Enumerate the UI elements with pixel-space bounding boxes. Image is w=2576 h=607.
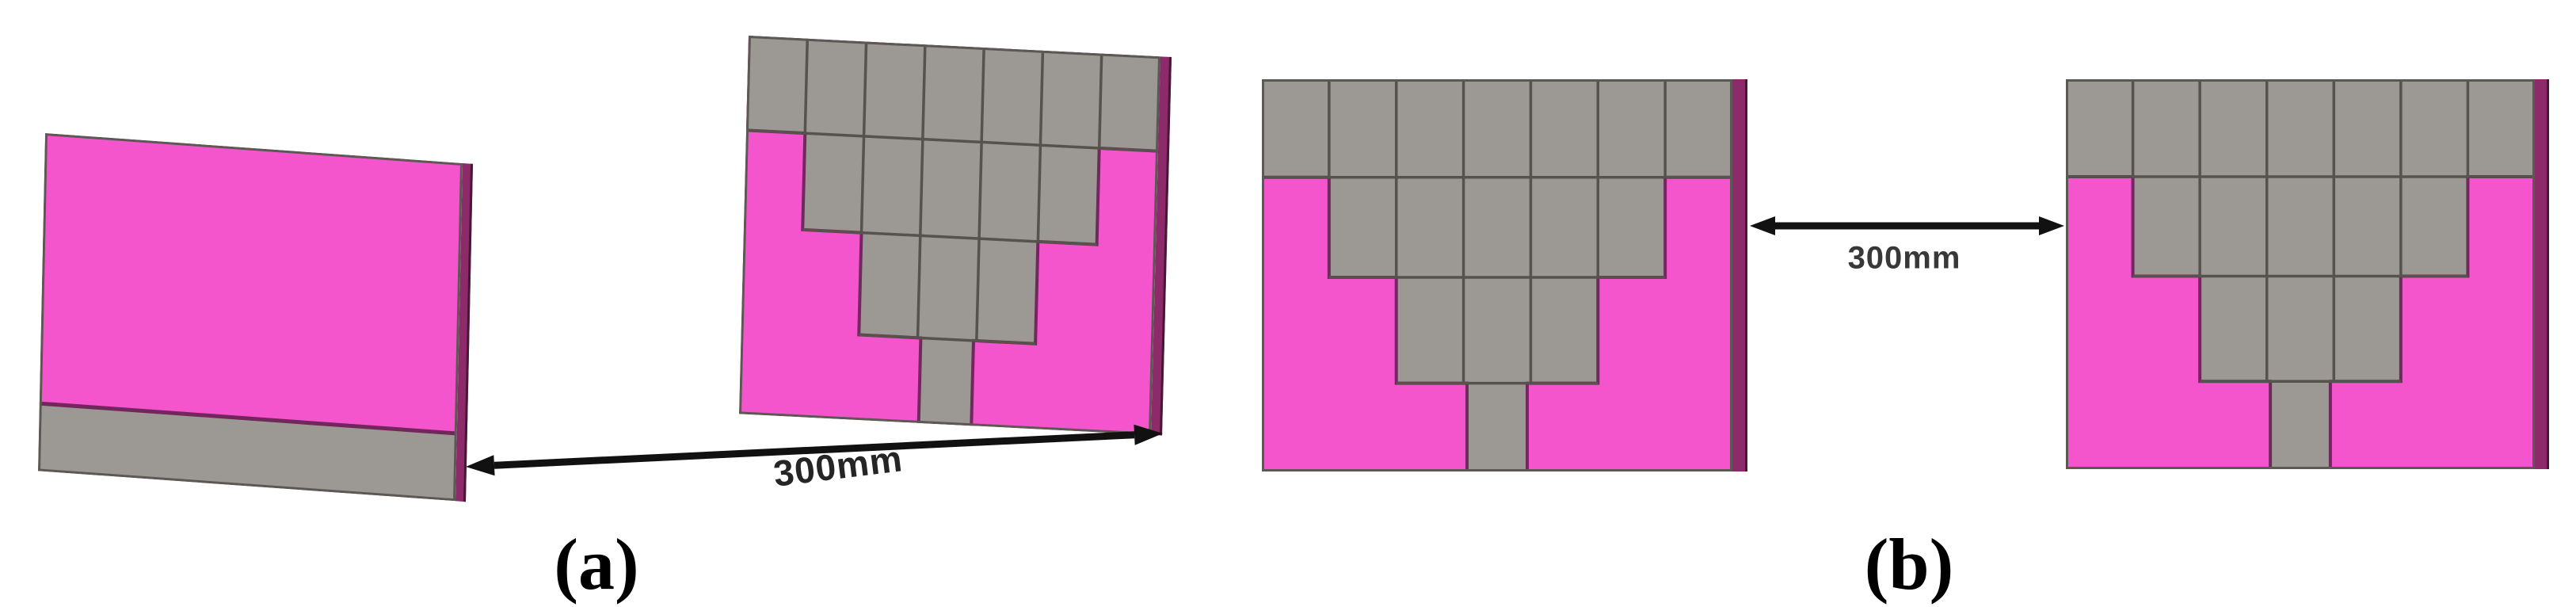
panel-a-back-substrate: [38, 133, 473, 502]
antenna-board: [739, 36, 1160, 435]
panel-a-antenna-tilted: [739, 36, 1172, 435]
caption-b: (b): [1865, 522, 1953, 606]
substrate-edge: [1732, 79, 1747, 471]
arrow-300mm-b: [1750, 216, 2064, 235]
antenna-back-board: [38, 133, 463, 501]
panel-b-antenna-right: [2066, 79, 2549, 469]
caption-a: (a): [554, 522, 638, 606]
figure-canvas: 300mm 300mm (a) (b): [0, 0, 2576, 607]
antenna-board: [1262, 79, 1732, 471]
distance-label-a: 300mm: [772, 437, 905, 495]
panel-b-antenna-left: [1262, 79, 1747, 471]
substrate-edge: [2535, 79, 2549, 469]
distance-label-b: 300mm: [1848, 241, 1961, 277]
antenna-board: [2066, 79, 2535, 469]
substrate-face: [40, 133, 463, 433]
